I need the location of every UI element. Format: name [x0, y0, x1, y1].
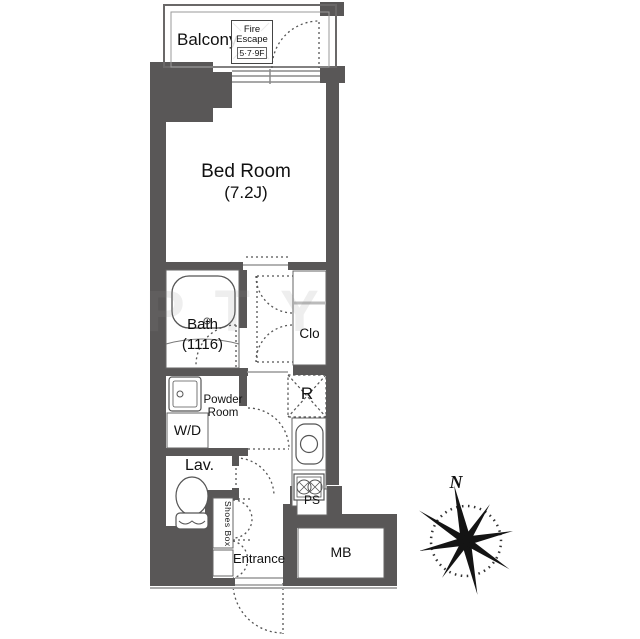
fire-escape-line2: Escape [236, 35, 268, 46]
label-entrance: Entrance [231, 552, 287, 566]
toilet [176, 477, 208, 529]
fire-escape-floors: 5·7·9F [237, 47, 266, 60]
balcony-window [232, 69, 320, 84]
label-refrigerator: R [288, 385, 326, 404]
label-bath: Bath [166, 317, 239, 334]
label-closet: Clo [293, 327, 326, 342]
label-shoes-box: Shoes Box [214, 501, 232, 547]
label-powder-line1: Powder [197, 394, 249, 407]
label-bed-room-size: (7.2J) [166, 184, 326, 203]
label-balcony: Balcony [177, 31, 237, 50]
label-bed-room: Bed Room [166, 162, 326, 183]
label-bath-size: (1116) [164, 337, 241, 354]
kitchen-sink [296, 424, 323, 464]
label-compass-north: N [442, 473, 470, 493]
compass-rose [407, 475, 524, 605]
label-washer-dryer: W/D [167, 413, 208, 448]
floor-plan: PTY Balcony Fire Escape 5·7·9F Bed Room … [0, 0, 640, 639]
label-pipe-shaft: PS [297, 494, 327, 507]
label-meter-box: MB [298, 545, 384, 560]
label-lavatory: Lav. [166, 457, 233, 475]
fire-escape-box: Fire Escape 5·7·9F [231, 20, 273, 64]
